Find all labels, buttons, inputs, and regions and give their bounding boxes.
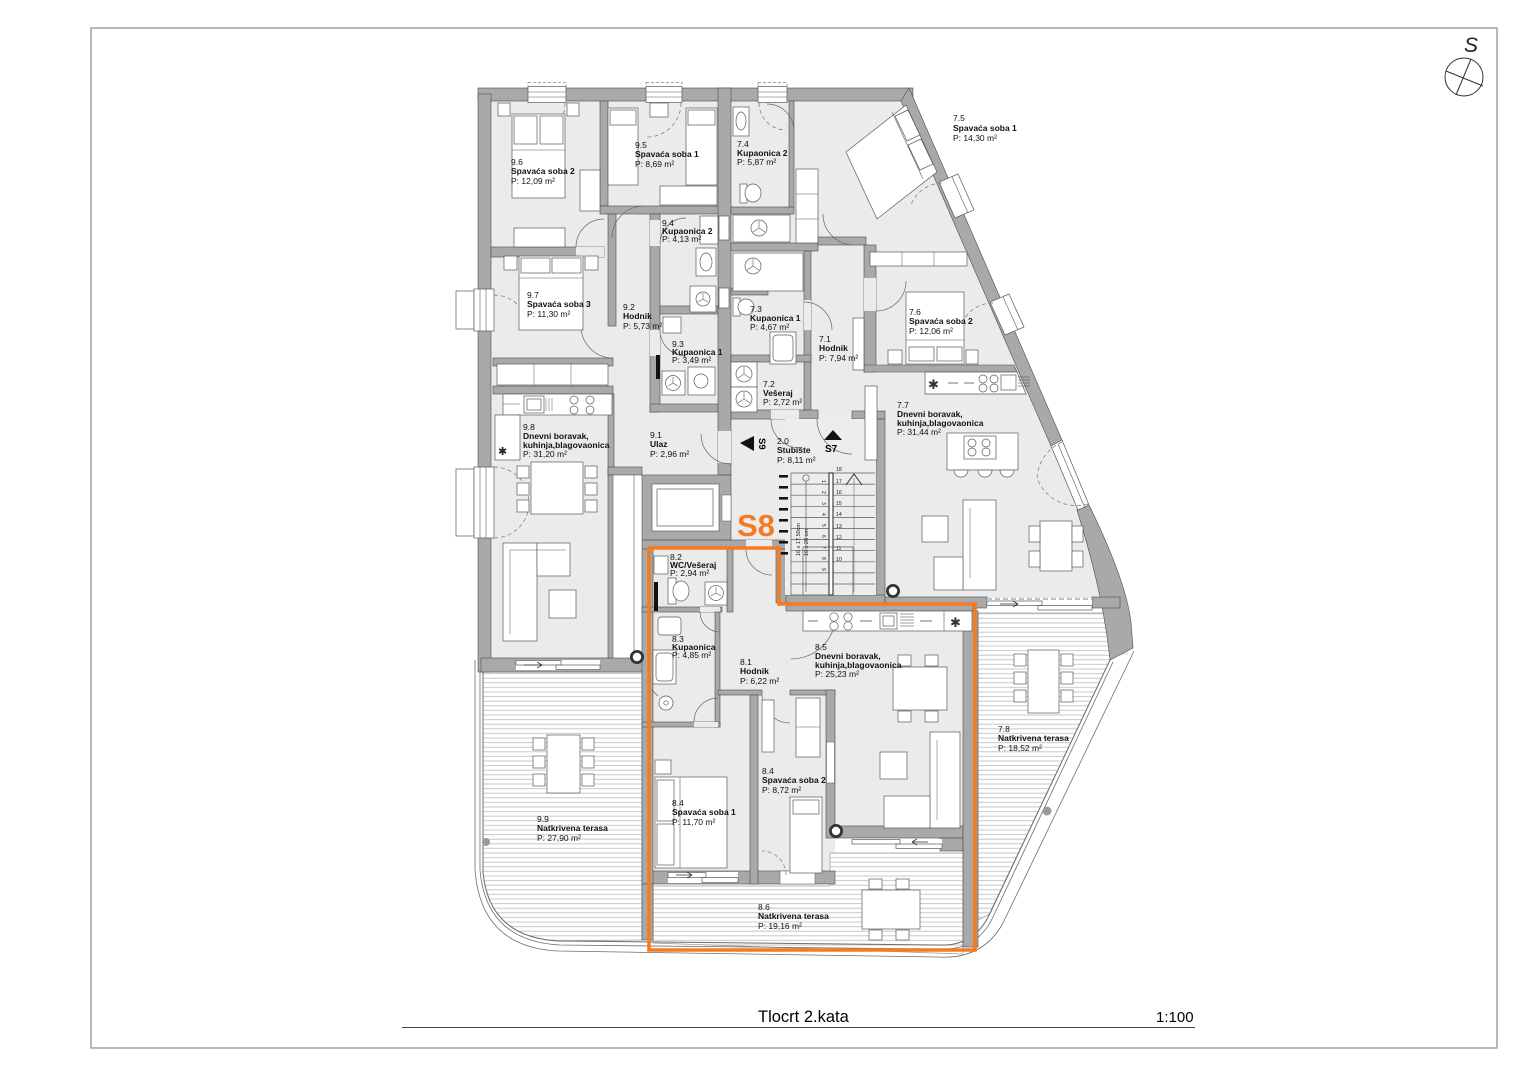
svg-text:P: 3,49 m²: P: 3,49 m² — [672, 355, 711, 365]
svg-text:P: 2,72 m²: P: 2,72 m² — [763, 397, 802, 407]
svg-text:✱: ✱ — [950, 615, 961, 630]
svg-text:P: 31,20 m²: P: 31,20 m² — [523, 449, 567, 459]
svg-text:P: 5,87 m²: P: 5,87 m² — [737, 157, 776, 167]
svg-text:P: 19,16 m²: P: 19,16 m² — [758, 921, 802, 931]
svg-text:P: 11,30 m²: P: 11,30 m² — [527, 309, 570, 319]
svg-text:✱: ✱ — [498, 446, 507, 458]
svg-text:P: 8,11 m²: P: 8,11 m² — [777, 455, 816, 465]
svg-text:16: 16 — [836, 490, 842, 496]
svg-text:8: 8 — [820, 557, 826, 560]
svg-text:15: 15 — [836, 501, 842, 507]
svg-text:4: 4 — [820, 513, 826, 516]
svg-text:2: 2 — [820, 491, 826, 494]
svg-text:P: 25,23 m²: P: 25,23 m² — [815, 669, 859, 679]
svg-text:13: 13 — [836, 524, 842, 530]
svg-text:P: 5,73 m²: P: 5,73 m² — [623, 321, 662, 331]
svg-text:P: 11,70 m²: P: 11,70 m² — [672, 817, 715, 827]
svg-text:Spavaća soba 2: Spavaća soba 2 — [909, 316, 973, 326]
svg-text:P: 4,85 m²: P: 4,85 m² — [672, 650, 711, 660]
svg-text:P: 7,94 m²: P: 7,94 m² — [819, 353, 858, 363]
svg-text:12: 12 — [836, 535, 842, 541]
svg-text:P: 12,09 m²: P: 12,09 m² — [511, 176, 555, 186]
svg-text:P: 27,90 m²: P: 27,90 m² — [537, 833, 581, 843]
svg-text:17: 17 — [836, 479, 842, 485]
svg-text:Spavaća soba 1: Spavaća soba 1 — [672, 807, 736, 817]
svg-text:Ulaz: Ulaz — [650, 439, 667, 449]
svg-text:✱: ✱ — [928, 377, 939, 392]
svg-text:7.5: 7.5 — [953, 113, 965, 123]
svg-text:P: 6,22 m²: P: 6,22 m² — [740, 676, 779, 686]
svg-text:P: 14,30 m²: P: 14,30 m² — [953, 133, 997, 143]
svg-text:P: 4,13 m²: P: 4,13 m² — [662, 234, 701, 244]
svg-text:Hodnik: Hodnik — [623, 311, 652, 321]
svg-text:P: 31,44 m²: P: 31,44 m² — [897, 427, 941, 437]
svg-text:Spavaća soba 3: Spavaća soba 3 — [527, 299, 591, 309]
svg-text:16 x 17,50cm: 16 x 17,50cm — [796, 523, 802, 556]
svg-text:7: 7 — [820, 546, 826, 549]
svg-text:1: 1 — [820, 480, 826, 483]
svg-text:5: 5 — [820, 524, 826, 527]
svg-text:Tlocrt 2.kata: Tlocrt 2.kata — [758, 1008, 850, 1026]
svg-text:6: 6 — [820, 535, 826, 538]
svg-text:14: 14 — [836, 512, 842, 518]
svg-text:S: S — [1464, 34, 1478, 57]
svg-text:Natkrivena terasa: Natkrivena terasa — [537, 823, 608, 833]
svg-text:9: 9 — [820, 568, 826, 571]
svg-text:Spavaća soba 2: Spavaća soba 2 — [511, 166, 575, 176]
svg-text:S7: S7 — [825, 444, 838, 455]
svg-text:16 x 28 cm: 16 x 28 cm — [804, 529, 810, 556]
svg-text:Natkrivena terasa: Natkrivena terasa — [758, 911, 829, 921]
svg-text:Hodnik: Hodnik — [740, 666, 769, 676]
svg-text:P: 12,06 m²: P: 12,06 m² — [909, 326, 953, 336]
svg-text:18: 18 — [836, 467, 842, 473]
svg-text:P: 2,96 m²: P: 2,96 m² — [650, 449, 689, 459]
svg-text:3: 3 — [820, 502, 826, 505]
svg-text:S9: S9 — [756, 438, 767, 450]
svg-text:Stubište: Stubište — [777, 445, 811, 455]
svg-text:Natkrivena terasa: Natkrivena terasa — [998, 733, 1069, 743]
svg-text:P: 4,67 m²: P: 4,67 m² — [750, 322, 789, 332]
svg-text:Spavaća soba 1: Spavaća soba 1 — [635, 149, 699, 159]
svg-text:10: 10 — [836, 557, 842, 563]
svg-text:P: 18,52 m²: P: 18,52 m² — [998, 743, 1042, 753]
svg-text:Hodnik: Hodnik — [819, 343, 848, 353]
svg-text:Spavaća soba 1: Spavaća soba 1 — [953, 123, 1017, 133]
svg-text:P: 2,94 m²: P: 2,94 m² — [670, 568, 709, 578]
svg-text:P: 8,72 m²: P: 8,72 m² — [762, 785, 801, 795]
svg-text:Spavaća soba 2: Spavaća soba 2 — [762, 775, 826, 785]
svg-text:S8: S8 — [737, 508, 775, 543]
svg-text:1:100: 1:100 — [1156, 1009, 1194, 1026]
svg-text:P: 8,69 m²: P: 8,69 m² — [635, 159, 674, 169]
